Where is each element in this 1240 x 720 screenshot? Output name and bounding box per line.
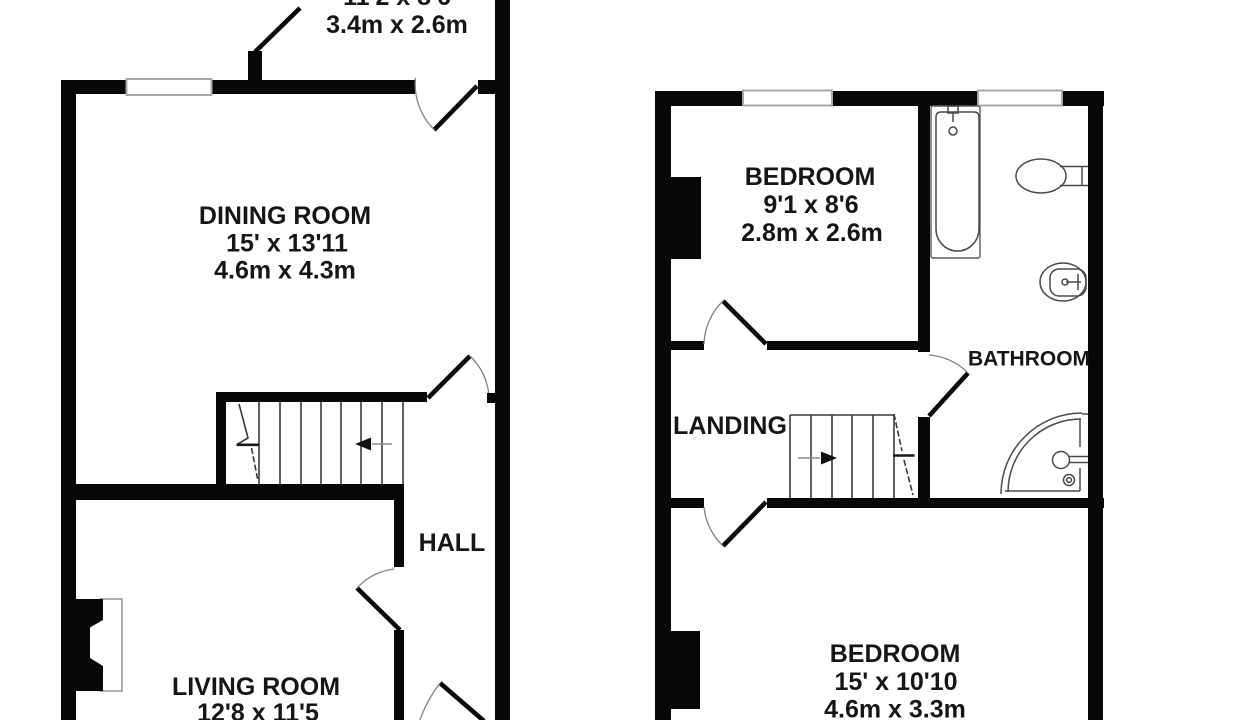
- svg-text:2.8m x 2.6m: 2.8m x 2.6m: [741, 219, 883, 247]
- svg-text:BEDROOM: BEDROOM: [745, 163, 876, 191]
- svg-text:DINING ROOM: DINING ROOM: [199, 202, 371, 230]
- svg-text:LANDING: LANDING: [673, 412, 787, 440]
- svg-text:4.6m x 4.3m: 4.6m x 4.3m: [214, 257, 356, 285]
- svg-text:LIVING ROOM: LIVING ROOM: [172, 673, 340, 701]
- svg-text:4.6m x 3.3m: 4.6m x 3.3m: [824, 696, 966, 720]
- svg-text:11'2 x 8'6: 11'2 x 8'6: [343, 0, 451, 11]
- svg-text:15' x 10'10: 15' x 10'10: [834, 668, 957, 696]
- svg-text:HALL: HALL: [419, 529, 486, 557]
- svg-text:15' x 13'11: 15' x 13'11: [226, 230, 348, 258]
- svg-text:BEDROOM: BEDROOM: [830, 640, 961, 668]
- svg-text:9'1 x 8'6: 9'1 x 8'6: [763, 191, 858, 219]
- svg-text:BATHROOM: BATHROOM: [968, 348, 1090, 371]
- svg-text:3.4m x 2.6m: 3.4m x 2.6m: [326, 11, 468, 39]
- svg-text:12'8 x 11'5: 12'8 x 11'5: [197, 699, 319, 720]
